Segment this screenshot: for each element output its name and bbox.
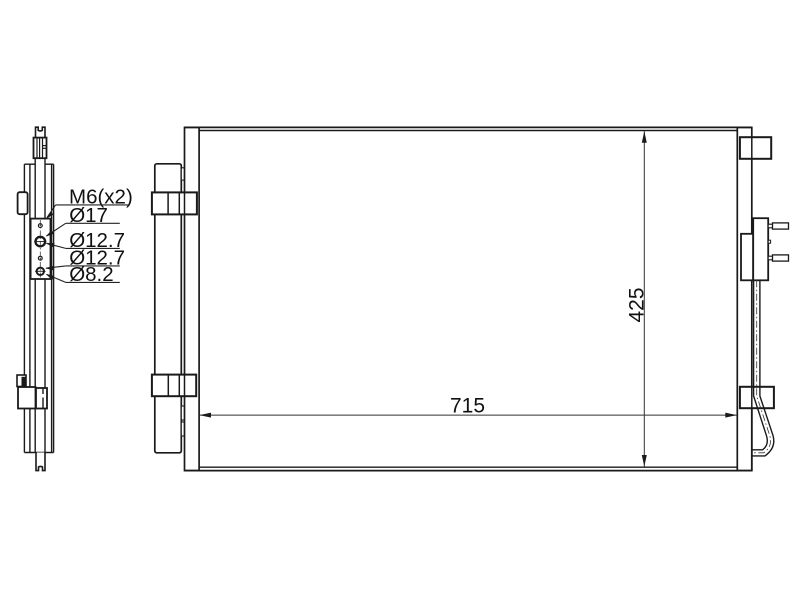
svg-text:425: 425 — [625, 287, 648, 322]
svg-text:715: 715 — [450, 395, 485, 418]
